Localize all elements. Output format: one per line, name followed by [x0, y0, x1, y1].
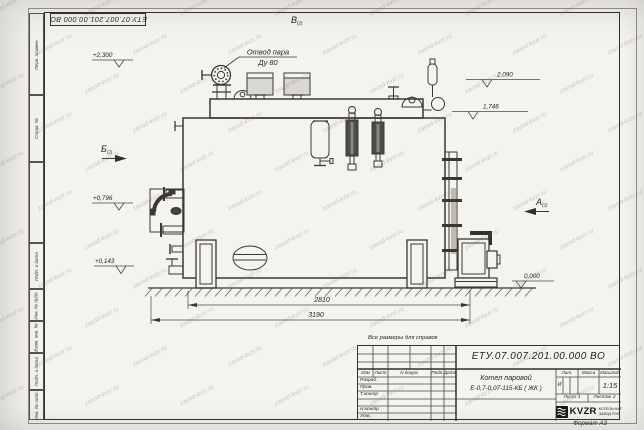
tb-col-podp: Подп. [431, 369, 444, 377]
tb-row-nkontr: Н.контр [358, 406, 388, 413]
sheet-label: Лист [563, 395, 575, 400]
tb-col-dokum: N докум. [388, 369, 431, 377]
callout-text: Ду 80 [257, 58, 278, 67]
steam-outlet-valve [202, 66, 231, 100]
company-logo: KVZR КОТЕЛЬНЫЙ ЗАВОД РЭП [556, 402, 621, 421]
tb-row-razrab: Разраб. [358, 377, 388, 384]
lit-header: Лит. [556, 369, 578, 377]
elevation-label: +0,143 [95, 258, 115, 265]
drawing-sheet: Перв. примен. Справ. № Подп. и дата Инв.… [0, 0, 644, 430]
sheet-value: 1 [578, 395, 581, 400]
format-label: Формат А3 [560, 420, 620, 429]
tb-row-utv: Утв. [358, 413, 388, 421]
view-label-b: Б(2) [101, 144, 113, 155]
pressure-gauge-assembly [423, 59, 445, 111]
company-subtitle: КОТЕЛЬНЫЙ ЗАВОД РЭП [599, 407, 622, 416]
wave-lines-icon [556, 406, 568, 418]
safety-valve-box-2 [284, 73, 310, 99]
elevation-label: +2,300 [93, 52, 113, 59]
dimension-value: 2810 [313, 297, 330, 304]
elevation-label: 0,000 [524, 273, 540, 280]
gauge-glass-1 [346, 107, 358, 171]
support-skid-right [407, 240, 427, 288]
tb-row-empty [358, 399, 388, 406]
sheets-value: 2 [613, 395, 616, 400]
elevation-label: 1,746 [483, 104, 499, 111]
title-block: ЕТУ.07.007.201.00.000 ВО Изм Лист N доку… [357, 345, 620, 420]
reference-note: Все размеры для справок [366, 334, 446, 343]
ground [145, 288, 536, 297]
body-side-valve [175, 121, 183, 131]
product-designation: Е-0,7-0,07-115-КБ ( ЖК ) [456, 384, 556, 395]
tb-row-tkontr: Т.контр [358, 391, 388, 399]
tb-col-izm: Изм [358, 369, 373, 377]
scale-header: Масштаб [599, 369, 621, 377]
lit-value: И [556, 377, 563, 394]
burner-unit [455, 231, 500, 287]
view-label-v: В(2) [291, 15, 303, 26]
sheet-cell: Лист 1 [556, 394, 588, 402]
dimension-value: 3190 [308, 312, 324, 319]
scale-value: 1:15 [599, 377, 621, 394]
callout-text: Отвод пара [247, 48, 289, 57]
safety-valve-box-1 [247, 73, 273, 99]
steam-drum [210, 99, 423, 118]
elevation-label: 2,090 [496, 72, 513, 79]
company-name: KVZR [570, 407, 597, 417]
elevation-label: +0,796 [93, 195, 113, 202]
manhole [233, 246, 267, 270]
boiler-body [183, 118, 445, 278]
mass-header: Масса [578, 369, 599, 377]
product-name: Котел паровой [456, 372, 556, 383]
title-doc-number: ЕТУ.07.007.201.00.000 ВО [456, 346, 621, 369]
water-level-column [311, 121, 333, 166]
tb-col-list: Лист [373, 369, 388, 377]
view-arrows [102, 155, 549, 215]
left-nozzles [161, 187, 183, 274]
support-skid-left [196, 240, 216, 288]
tb-col-data: Дата [444, 369, 456, 377]
sheets-label: Листов [593, 395, 610, 400]
view-label-a: А(2) [535, 197, 548, 208]
drum-vent-valve [388, 87, 399, 99]
sheets-cell: Листов 2 [588, 394, 621, 402]
tb-row-prov: Пров. [358, 384, 388, 391]
